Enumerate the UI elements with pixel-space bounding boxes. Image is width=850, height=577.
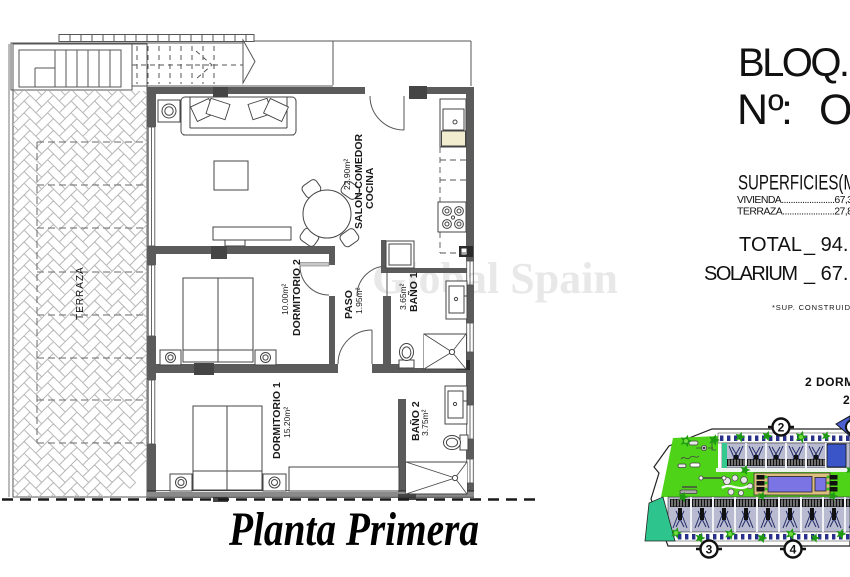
svg-text:3.75m²: 3.75m² [420,409,430,436]
svg-text:3.65m²: 3.65m² [398,283,408,310]
svg-text:N: N [737,86,768,134]
svg-text:COCINA: COCINA [364,167,376,209]
svg-text:VIVIENDA......................: VIVIENDA.......................67,3 [737,194,850,206]
svg-text:_ 94.: _ 94. [803,234,848,256]
svg-text:*SUP. CONSTRUID: *SUP. CONSTRUID [772,303,850,312]
svg-text:1.95m²: 1.95m² [354,287,364,314]
svg-text:3: 3 [706,542,713,556]
svg-text:TOTAL: TOTAL [739,234,802,256]
svg-text:TERRAZA: TERRAZA [75,266,86,320]
svg-text:BLOQ.: BLOQ. [738,41,850,85]
svg-text:2: 2 [843,393,850,407]
svg-text:Planta Primera: Planta Primera [228,503,479,556]
svg-text:O: O [819,86,850,134]
svg-text:BAÑO 1: BAÑO 1 [407,272,420,312]
svg-text:_ 67.: _ 67. [803,263,848,285]
svg-text:15.20m²: 15.20m² [282,407,292,438]
svg-text:SOLARIUM: SOLARIUM [704,263,798,285]
svg-text:22.90m²: 22.90m² [342,159,352,190]
svg-text:SUPERFICIES(M: SUPERFICIES(M [738,171,850,195]
svg-text::: : [781,86,793,134]
svg-text:2: 2 [778,420,785,434]
svg-text:2 DORM: 2 DORM [805,375,850,389]
svg-text:4: 4 [790,542,797,556]
svg-text:10.00m²: 10.00m² [280,284,290,315]
svg-text:DORMITORIO 2: DORMITORIO 2 [291,259,303,336]
svg-text:TERRAZA......................2: TERRAZA......................27,8 [737,206,850,218]
